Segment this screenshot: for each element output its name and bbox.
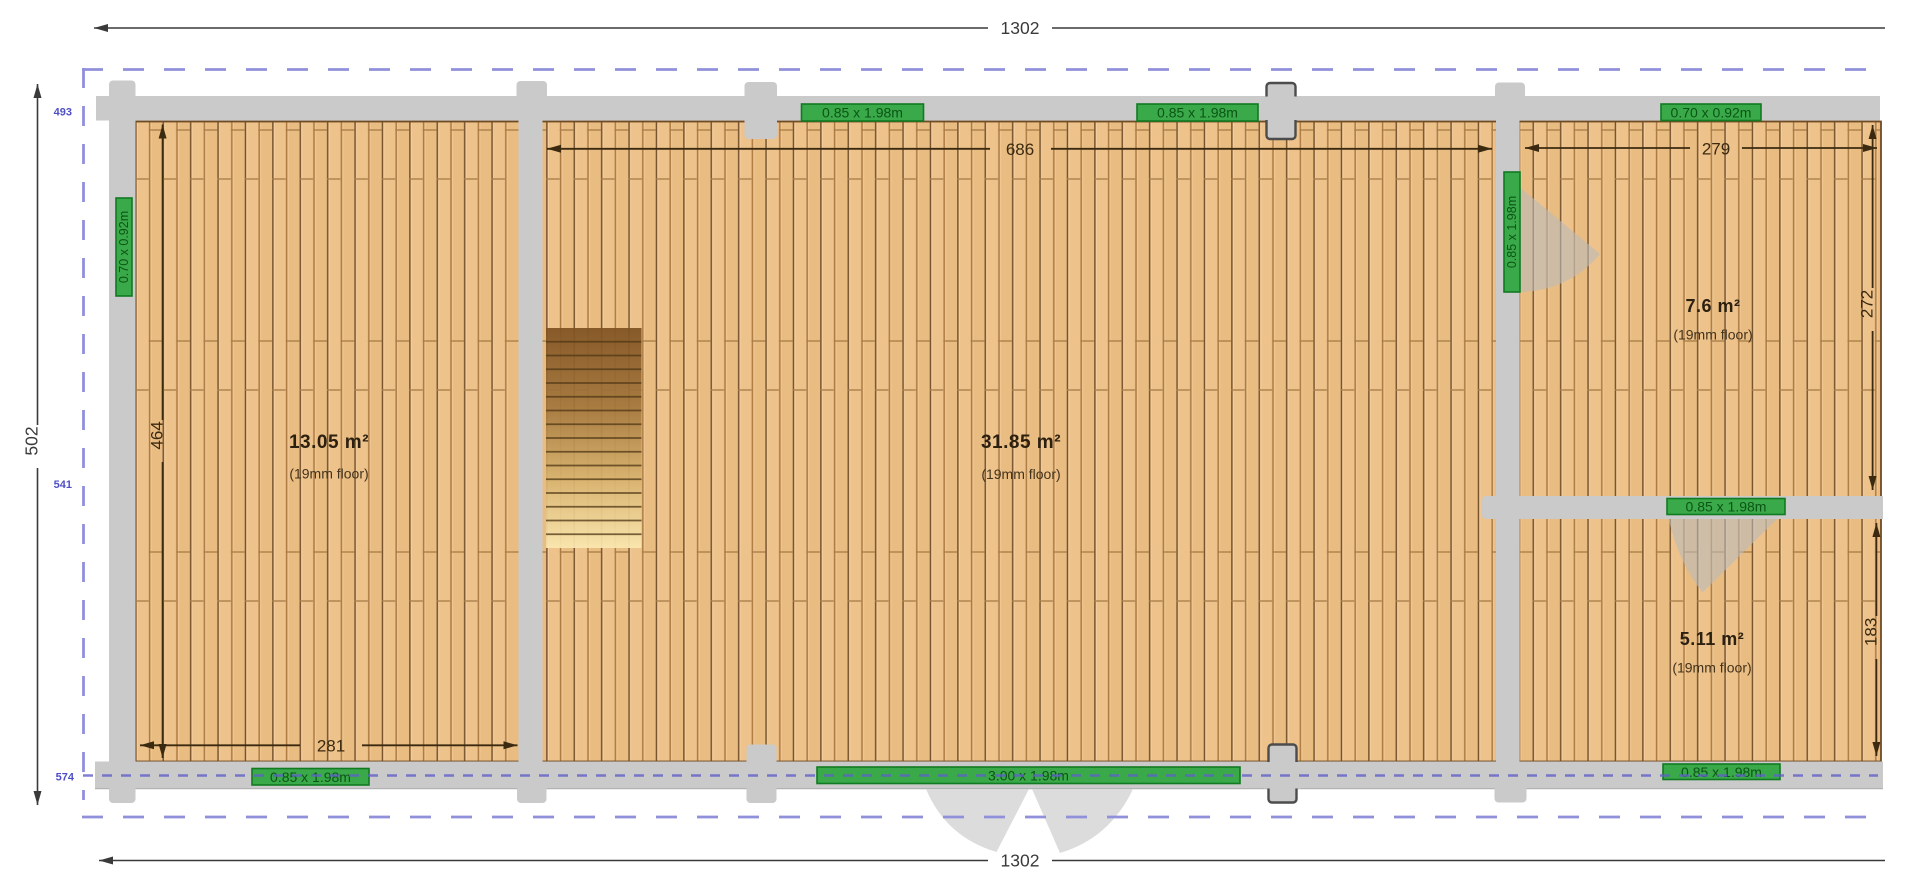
svg-text:0.85 x 1.98m: 0.85 x 1.98m [1686, 499, 1767, 515]
svg-text:272: 272 [1858, 290, 1877, 318]
svg-text:493: 493 [54, 107, 72, 119]
svg-text:0.70 x 0.92m: 0.70 x 0.92m [1671, 104, 1752, 120]
svg-text:0.85 x 1.98m: 0.85 x 1.98m [822, 105, 903, 121]
svg-text:0.85 x 1.98m: 0.85 x 1.98m [270, 769, 351, 785]
svg-text:541: 541 [54, 479, 72, 491]
svg-text:281: 281 [317, 737, 345, 756]
svg-text:(19mm floor): (19mm floor) [1673, 327, 1752, 343]
svg-text:686: 686 [1006, 140, 1034, 159]
svg-text:0.70 x 0.92m: 0.70 x 0.92m [117, 211, 131, 283]
svg-text:13.05 m²: 13.05 m² [289, 432, 369, 453]
svg-text:(19mm floor): (19mm floor) [1672, 660, 1751, 676]
svg-text:464: 464 [148, 421, 167, 449]
svg-text:(19mm floor): (19mm floor) [981, 466, 1060, 482]
svg-text:574: 574 [56, 772, 75, 784]
svg-text:0.85 x 1.98m: 0.85 x 1.98m [1681, 764, 1762, 780]
svg-text:7.6 m²: 7.6 m² [1685, 296, 1740, 316]
svg-text:0.85 x 1.98m: 0.85 x 1.98m [1505, 196, 1519, 268]
svg-text:279: 279 [1702, 139, 1730, 158]
svg-text:0.85 x 1.98m: 0.85 x 1.98m [1157, 105, 1238, 121]
svg-text:1302: 1302 [1001, 851, 1040, 871]
svg-text:31.85 m²: 31.85 m² [981, 432, 1061, 453]
svg-text:183: 183 [1861, 618, 1880, 646]
svg-text:(19mm floor): (19mm floor) [289, 466, 368, 482]
svg-text:5.11 m²: 5.11 m² [1680, 629, 1745, 649]
svg-text:1302: 1302 [1001, 18, 1040, 38]
svg-text:502: 502 [22, 426, 42, 455]
